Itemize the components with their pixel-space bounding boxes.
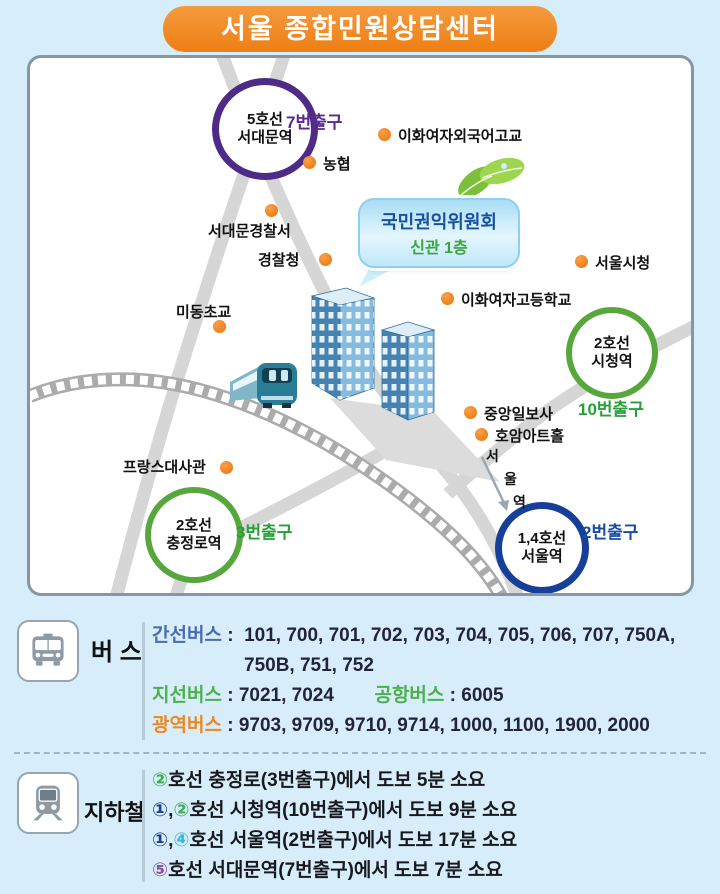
seoul-station-vertical-char: 울: [504, 469, 517, 489]
station-seoul-line14: 1,4호선 서울역: [495, 502, 589, 594]
station-name: 서대문역: [237, 129, 292, 146]
poi-joongang-ilbo: 중앙일보사: [484, 403, 553, 424]
subway-info: ②호선 충정로(3번출구)에서 도보 5분 소요 ①,②호선 시청역(10번출구…: [152, 766, 517, 886]
line-badge: ②: [152, 770, 168, 791]
poi-ewha-foreign: 이화여자외국어고교: [398, 125, 522, 146]
leaf-decoration: [453, 153, 528, 203]
station-name: 서울역: [521, 548, 562, 565]
poi-dot: [464, 406, 477, 419]
station-chungjeongno-line2: 2호선 충정로역: [145, 487, 243, 583]
subway-row-chungjeongno: ②호선 충정로(3번출구)에서 도보 5분 소요: [152, 766, 517, 796]
poi-seodaemun-police: 서대문경찰서: [208, 220, 291, 241]
colon: :: [227, 625, 233, 646]
poi-hoam-art-hall: 호암아트홀: [495, 425, 564, 446]
subway-section-label: 지하철: [84, 795, 145, 827]
bus-trunk-values2: 750B, 751, 752: [244, 655, 374, 676]
location-map: 5호선 서대문역 7번출구 2호선 시청역 10번출구 2호선 충정로역 3번출…: [27, 55, 694, 596]
poi-dot: [265, 204, 278, 217]
subway-row-seodaemun: ⑤호선 서대문역(7번출구)에서 도보 7분 소요: [152, 856, 517, 886]
station-line: 1,4호선: [518, 530, 566, 547]
bus-info: 간선버스 : 101, 700, 701, 702, 703, 704, 705…: [152, 621, 675, 741]
bus-metro-values: 9703, 9709, 9710, 9714, 1000, 1100, 1900…: [239, 715, 650, 736]
bus-airport-label: 공항버스: [374, 685, 444, 706]
poi-seoul-cityhall: 서울시청: [595, 252, 650, 273]
colon: :: [227, 715, 233, 736]
exit-label-seoul: 2번출구: [582, 518, 638, 543]
poi-dot: [303, 156, 316, 169]
bus-trunk-values: 101, 700, 701, 702, 703, 704, 705, 706, …: [244, 625, 675, 646]
subway-row-text: 호선 서대문역(7번출구)에서 도보 7분 소요: [168, 860, 503, 881]
poi-nonghyup: 농협: [323, 153, 351, 174]
bus-trunk-row2: 750B, 751, 752: [152, 651, 675, 681]
bus-branch-label: 지선버스: [152, 685, 222, 706]
station-line: 2호선: [176, 517, 212, 534]
bus-trunk-row: 간선버스 : 101, 700, 701, 702, 703, 704, 705…: [152, 621, 675, 651]
poi-ewha-girls-high: 이화여자고등학교: [461, 289, 571, 310]
poi-dot: [441, 292, 454, 305]
line-badge: ②: [173, 800, 189, 821]
poi-police-agency: 경찰청: [258, 249, 299, 270]
line-badge: ⑤: [152, 860, 168, 881]
bus-trunk-label: 간선버스: [152, 625, 222, 646]
bubble-org-name: 국민권익위원회: [381, 208, 497, 234]
station-line: 5호선: [247, 111, 283, 128]
subway-row-cityhall: ①,②호선 시청역(10번출구)에서 도보 9분 소요: [152, 796, 517, 826]
station-line: 2호선: [594, 335, 630, 352]
line-badge: ①: [152, 800, 168, 821]
bus-branch-values: 7021, 7024: [239, 685, 334, 706]
poi-dot: [575, 255, 588, 268]
speech-bubble-kacrc: 국민권익위원회 신관 1층: [358, 198, 520, 268]
bus-metro-label: 광역버스: [152, 715, 222, 736]
poi-dot: [475, 428, 488, 441]
seoul-station-vertical-char: 서: [486, 446, 499, 466]
bus-branch-row: 지선버스 : 7021, 7024 공항버스 : 6005: [152, 681, 675, 711]
bus-metro-row: 광역버스 : 9703, 9709, 9710, 9714, 1000, 110…: [152, 711, 675, 741]
page-title: 서울 종합민원상담센터: [163, 6, 557, 52]
subway-icon: [17, 772, 79, 834]
headquarters-buildings: [312, 288, 434, 420]
subway-row-seoul: ①,④호선 서울역(2번출구)에서 도보 17분 소요: [152, 826, 517, 856]
station-name: 충정로역: [166, 535, 221, 552]
section-divider: [142, 770, 145, 882]
dashed-divider: [14, 752, 706, 754]
station-cityhall-line2: 2호선 시청역: [566, 307, 658, 399]
subway-row-text: 호선 서울역(2번출구)에서 도보 17분 소요: [189, 830, 517, 851]
bus-airport-values: 6005: [461, 685, 503, 706]
seoul-station-vertical-char: 역: [513, 492, 526, 512]
station-name: 시청역: [591, 353, 632, 370]
exit-label-seodaemun: 7번출구: [286, 108, 342, 133]
exit-label-chungjeongno: 3번출구: [236, 518, 292, 543]
subway-row-text: 호선 시청역(10번출구)에서 도보 9분 소요: [189, 800, 517, 821]
poi-french-embassy: 프랑스대사관: [123, 456, 206, 477]
section-divider: [142, 622, 145, 740]
colon: :: [450, 685, 456, 706]
line-badge: ④: [173, 830, 189, 851]
subway-row-text: 호선 충정로(3번출구)에서 도보 5분 소요: [168, 770, 485, 791]
bus-icon: [17, 620, 79, 682]
line-badge: ①: [152, 830, 168, 851]
exit-label-cityhall: 10번출구: [578, 395, 644, 420]
poi-midong-elementary: 미동초교: [176, 301, 231, 322]
poi-dot: [378, 128, 391, 141]
bus-section-label: 버 스: [91, 632, 142, 667]
bubble-floor: 신관 1층: [410, 234, 468, 258]
poi-dot: [220, 461, 233, 474]
colon: :: [227, 685, 233, 706]
poi-dot: [213, 320, 226, 333]
poi-dot: [319, 253, 332, 266]
